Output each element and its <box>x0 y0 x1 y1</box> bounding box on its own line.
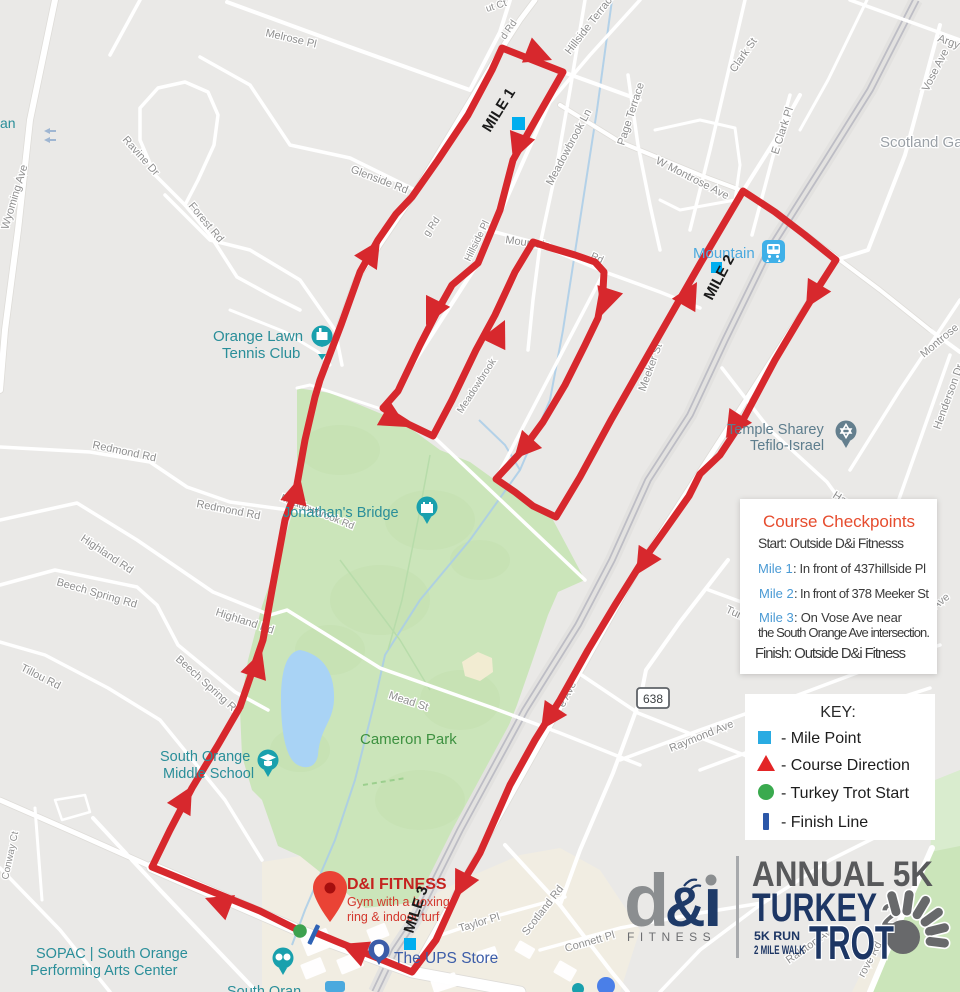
svg-text:Middle School: Middle School <box>163 766 254 782</box>
svg-text:the South Orange Ave intersect: the South Orange Ave intersection. <box>758 625 930 640</box>
svg-text:- Turkey Trot Start: - Turkey Trot Start <box>781 785 910 802</box>
svg-text:Cameron Park: Cameron Park <box>360 731 457 748</box>
svg-text:Tefilo-Israel: Tefilo-Israel <box>750 438 824 454</box>
svg-text:an: an <box>0 115 16 131</box>
svg-text:FITNESS: FITNESS <box>627 930 716 944</box>
svg-text:Gym with a boxing: Gym with a boxing <box>347 895 450 909</box>
svg-text:Mile 2: Mile 2 <box>759 586 794 601</box>
svg-text:Scotland Ga: Scotland Ga <box>880 134 960 151</box>
svg-text:Mile 3: Mile 3 <box>759 610 794 625</box>
svg-text:Temple Sharey: Temple Sharey <box>727 422 824 438</box>
svg-text:D&I FITNESS: D&I FITNESS <box>347 876 447 893</box>
svg-text:KEY:: KEY: <box>820 704 856 721</box>
svg-text:- Course Direction: - Course Direction <box>781 757 910 774</box>
svg-text:Orange Lawn: Orange Lawn <box>213 328 303 345</box>
svg-text:South Orange: South Orange <box>160 749 250 765</box>
svg-text:The UPS Store: The UPS Store <box>394 950 498 967</box>
svg-text:Course Checkpoints: Course Checkpoints <box>763 512 915 531</box>
svg-text:South Oran: South Oran <box>227 984 301 992</box>
svg-text:Start: Outside D&i Fitnesss: Start: Outside D&i Fitnesss <box>758 536 904 551</box>
svg-text:638: 638 <box>643 692 663 706</box>
svg-text:- Finish Line: - Finish Line <box>781 814 868 831</box>
svg-text:: In front of 437hillside Pl: : In front of 437hillside Pl <box>793 561 926 576</box>
svg-text:Performing Arts Center: Performing Arts Center <box>30 963 178 979</box>
svg-text:Tennis Club: Tennis Club <box>222 345 300 362</box>
svg-text:TROT: TROT <box>809 916 894 969</box>
svg-text:: In front of 378 Meeker St: : In front of 378 Meeker St <box>794 586 929 601</box>
svg-text:ring & indoor turf: ring & indoor turf <box>347 910 440 924</box>
svg-text:Finish: Outside D&i Fitness: Finish: Outside D&i Fitness <box>755 646 906 662</box>
svg-text:5K RUN: 5K RUN <box>754 931 800 943</box>
svg-text:SOPAC | South Orange: SOPAC | South Orange <box>36 946 188 962</box>
svg-text:Mile 1: Mile 1 <box>758 561 793 576</box>
svg-text:: On Vose Ave near: : On Vose Ave near <box>794 610 903 625</box>
svg-text:- Mile Point: - Mile Point <box>781 730 862 747</box>
svg-text:2 MILE WALK: 2 MILE WALK <box>754 945 805 957</box>
svg-text:Jonathan's Bridge: Jonathan's Bridge <box>283 505 399 521</box>
